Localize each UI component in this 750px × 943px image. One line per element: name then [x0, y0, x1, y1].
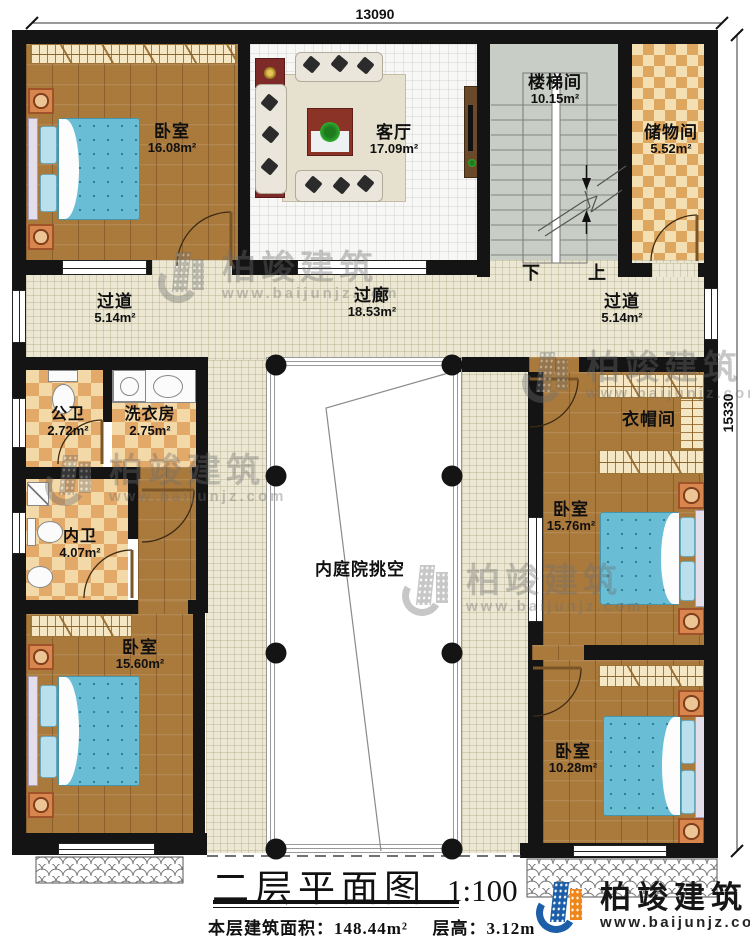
room-label-bedroom-r1: 卧室15.76m² — [547, 500, 595, 534]
room-label-stairwell: 楼梯间10.15m² — [528, 73, 582, 107]
wall — [477, 44, 490, 277]
window — [62, 260, 147, 275]
baijun-logo-icon — [402, 563, 456, 617]
watermark: 柏竣建筑 www.baijunjz.com — [522, 350, 750, 404]
room-label-bath-private: 内卫4.07m² — [59, 528, 100, 560]
bed-blanket-fold — [59, 119, 79, 219]
watermark: 柏竣建筑 www.baijunjz.com — [45, 453, 286, 507]
room-label-living: 客厅17.09m² — [370, 123, 418, 157]
sink — [27, 566, 53, 588]
room-label-gallery: 过廊18.53m² — [348, 286, 396, 320]
window — [12, 398, 26, 448]
bed-mattress — [603, 716, 681, 816]
room-label-bedroom-tl: 卧室16.08m² — [148, 122, 196, 156]
floor-plan-page: 柏竣建筑 www.baijunjz.com 柏竣建筑 www.baijunjz.… — [0, 0, 750, 943]
company-logo-icon — [536, 880, 590, 934]
tv — [468, 105, 473, 151]
nightstand — [678, 482, 705, 509]
window — [12, 290, 26, 343]
dimension-top: 13090 — [345, 6, 405, 22]
bed-pillow — [681, 720, 695, 764]
bed — [28, 676, 140, 786]
company-logo: 柏竣建筑 www.baijunjz.com — [536, 880, 750, 934]
company-name: 柏竣建筑 — [600, 882, 750, 913]
toilet-tank — [27, 518, 36, 546]
floor-height-value: 3.12m — [487, 919, 536, 938]
baijun-logo-icon — [522, 350, 576, 404]
bed-pillow — [40, 126, 57, 164]
baijun-logo-icon — [158, 250, 212, 304]
bed-headboard — [28, 676, 38, 786]
room-label-cloakroom: 衣帽间 — [622, 410, 676, 429]
plant — [320, 122, 340, 142]
watermark-website: www.baijunjz.com — [466, 598, 643, 617]
sink — [153, 375, 183, 398]
room-label-bath-public: 公卫2.72m² — [47, 406, 88, 438]
room-label-laundry: 洗衣房2.75m² — [124, 406, 175, 438]
window — [704, 288, 718, 340]
door-opening — [532, 645, 584, 660]
bed-pillow — [40, 174, 57, 212]
bed — [28, 118, 140, 220]
corridor-left-strip-floor — [206, 360, 266, 853]
dimension-right: 15330 — [720, 383, 736, 443]
bed-blanket-fold — [662, 717, 680, 815]
nightstand — [28, 88, 54, 114]
bed — [603, 714, 705, 818]
cloakroom-wardrobe — [680, 398, 704, 450]
door-opening — [652, 263, 698, 277]
watermark-company: 柏竣建筑 — [222, 251, 399, 285]
floor-area-label: 本层建筑面积： — [208, 919, 334, 938]
stair-down-label: 下 — [522, 259, 540, 285]
room-label-bedroom-r2: 卧室10.28m² — [549, 742, 597, 776]
wardrobe — [598, 665, 704, 687]
wardrobe — [30, 615, 132, 637]
title-underline — [213, 900, 459, 904]
bed-pillow — [40, 685, 57, 727]
baijun-logo-icon — [45, 453, 99, 507]
wall — [193, 613, 205, 853]
floor-height-label: 层高： — [433, 919, 487, 938]
room-label-corridor-left: 过道5.14m² — [94, 292, 135, 326]
washing-machine-door — [120, 377, 139, 396]
watermark-website: www.baijunjz.com — [109, 488, 286, 507]
room-label-courtyard: 内庭院挑空 — [315, 560, 405, 579]
door-opening — [138, 600, 188, 614]
nightstand — [678, 818, 705, 845]
title-underline-thin — [213, 907, 459, 908]
cloakroom-wardrobe — [598, 450, 704, 474]
coffee-table — [307, 108, 353, 156]
toilet-tank — [48, 370, 78, 382]
nightstand — [28, 792, 54, 818]
floor-area-value: 148.44m² — [334, 919, 408, 938]
bed-mattress — [58, 118, 140, 220]
bed-pillow — [680, 561, 695, 601]
wall — [103, 357, 112, 422]
nightstand — [28, 644, 54, 670]
wardrobe — [30, 44, 236, 64]
plant — [468, 159, 476, 167]
watermark-company: 柏竣建筑 — [109, 454, 286, 488]
watermark-company: 柏竣建筑 — [466, 564, 643, 598]
watermark: 柏竣建筑 www.baijunjz.com — [402, 563, 643, 617]
wall — [704, 30, 718, 858]
window — [58, 843, 155, 855]
company-website: www.baijunjz.com — [600, 913, 750, 933]
nightstand — [678, 690, 705, 717]
window — [573, 845, 667, 857]
bed-mattress — [58, 676, 140, 786]
window — [12, 512, 26, 554]
watermark-company: 柏竣建筑 — [586, 351, 750, 385]
room-label-bedroom-bl: 卧室15.60m² — [116, 638, 164, 672]
bed-headboard — [28, 118, 38, 220]
stair-up-label: 上 — [588, 259, 606, 285]
tv-cabinet — [464, 86, 478, 178]
wall — [12, 30, 718, 44]
nightstand — [28, 224, 54, 250]
bed-pillow — [681, 770, 695, 814]
bed-pillow — [40, 736, 57, 778]
bed-blanket-fold — [661, 513, 679, 604]
floor-area-line: 本层建筑面积：148.44m² 层高：3.12m — [208, 914, 535, 939]
room-label-storage: 储物间5.52m² — [644, 123, 698, 157]
bed-blanket-fold — [59, 677, 79, 785]
wall — [618, 44, 632, 277]
room-label-corridor-right: 过道5.14m² — [601, 292, 642, 326]
wall — [238, 44, 250, 275]
nightstand — [678, 608, 705, 635]
bed-pillow — [680, 517, 695, 557]
